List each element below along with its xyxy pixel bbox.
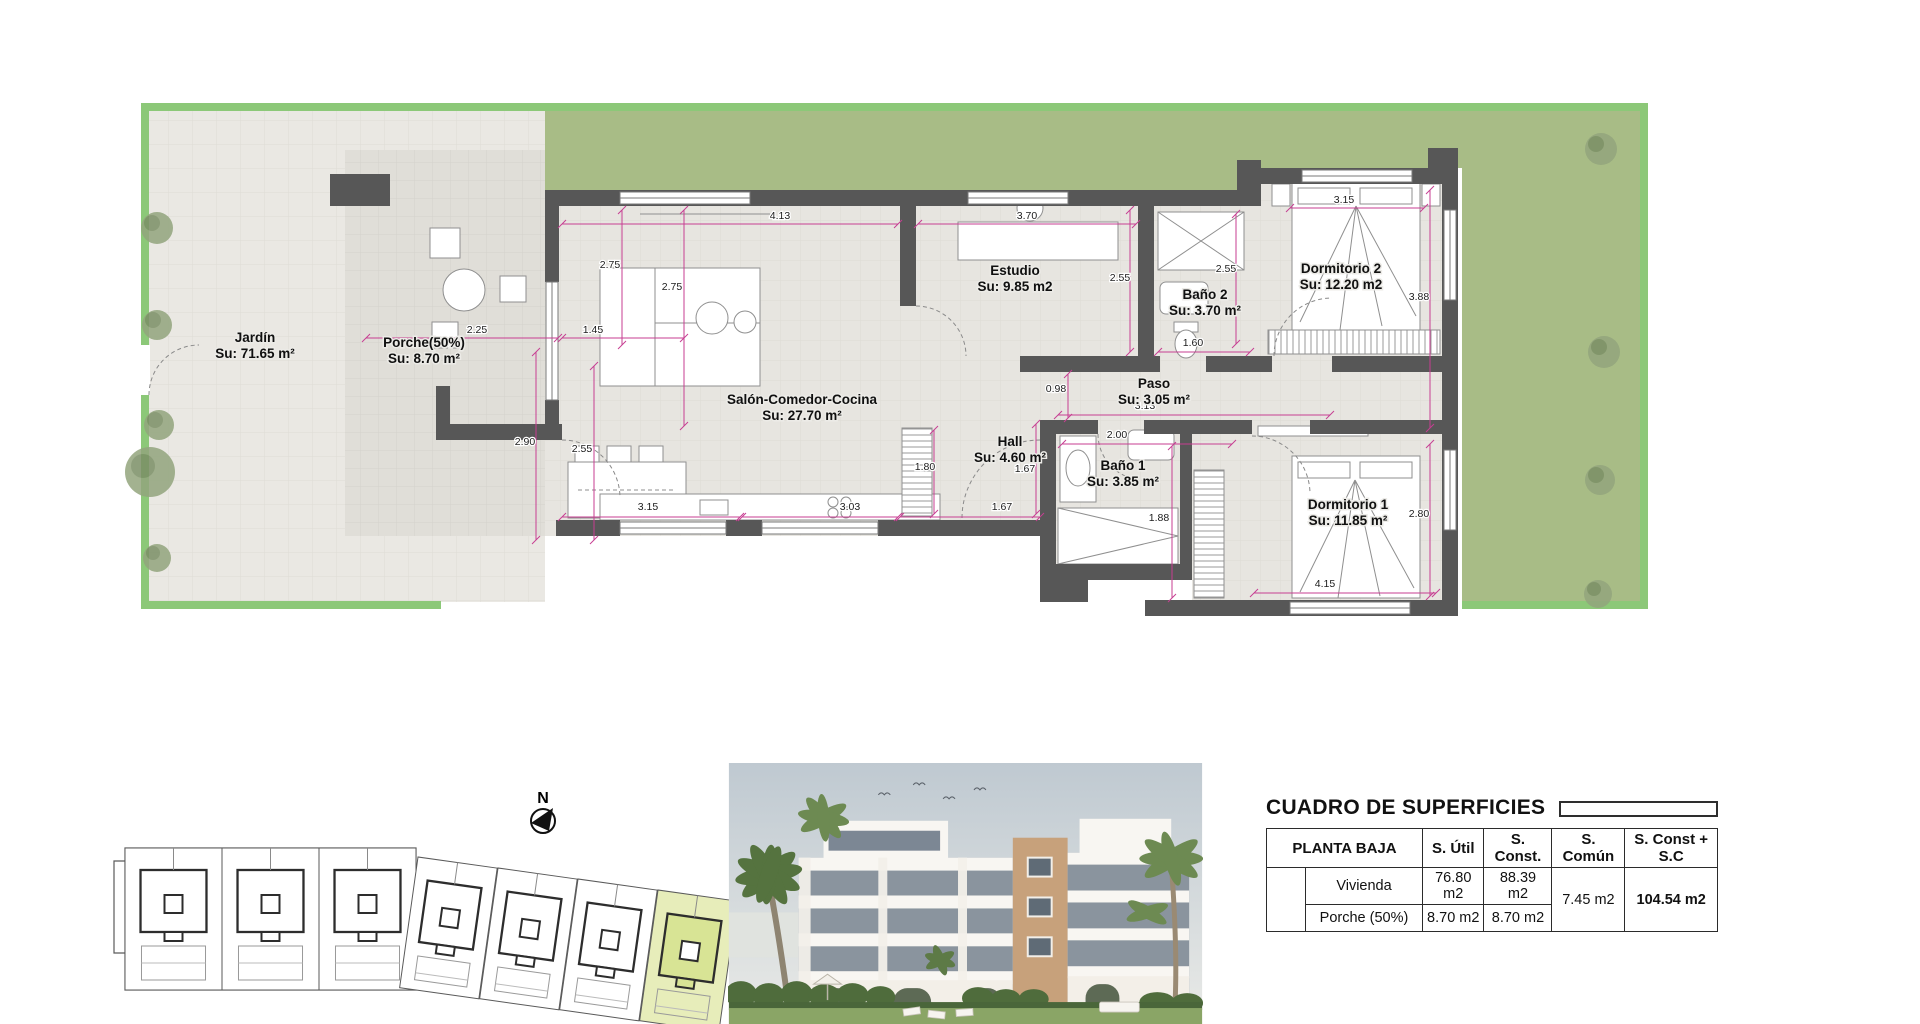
north-label: N — [537, 790, 549, 807]
porche-util-value: 8.70 m2 — [1423, 905, 1484, 932]
dimension-label: 3.03 — [840, 501, 861, 513]
site-unit — [125, 848, 222, 990]
room-label: Jardín — [235, 330, 276, 345]
surface-table: PLANTA BAJA S. Útil S. Const. S. Común S… — [1266, 828, 1718, 932]
dimension-label: 2.25 — [467, 324, 488, 336]
dimension-label: 2.55 — [572, 443, 593, 455]
dimension-label: 2.55 — [1216, 263, 1237, 275]
dimension-label: 1.88 — [1149, 512, 1170, 524]
surface-table-title: CUADRO DE SUPERFICIES — [1266, 796, 1545, 820]
room-label: Su: 3.85 m² — [1087, 474, 1160, 489]
dimension-label: 2.55 — [1110, 272, 1131, 284]
title-bar-decoration — [1559, 801, 1718, 817]
room-label: Su: 8.70 m² — [388, 351, 461, 366]
col-s-const-sc: S. Const + S.C — [1625, 829, 1718, 868]
room-label: Paso — [1138, 376, 1170, 391]
room-label: Su: 27.70 m² — [762, 408, 842, 423]
dimension-label: 4.13 — [770, 210, 791, 222]
dimension-label: 1.67 — [992, 501, 1013, 513]
dimension-label: 3.70 — [1017, 210, 1038, 222]
room-label: Estudio — [990, 263, 1040, 278]
room-label: Su: 71.65 m² — [215, 346, 295, 361]
garden-gate — [140, 345, 150, 395]
room-label: Baño 1 — [1100, 458, 1146, 473]
vivienda-label: Vivienda — [1306, 868, 1423, 905]
room-label: Dormitorio 2 — [1301, 261, 1381, 276]
dimension-label: 0.98 — [1046, 383, 1067, 395]
comun-value: 7.45 m2 — [1552, 868, 1625, 932]
table-row: Vivienda 76.80 m2 88.39 m2 7.45 m2 104.5… — [1267, 868, 1718, 905]
dimension-label: 3.15 — [638, 501, 659, 513]
dimension-label: 4.15 — [1315, 578, 1336, 590]
room-label: Su: 11.85 m² — [1309, 513, 1388, 528]
dimension-label: 2.75 — [662, 281, 683, 293]
porche-label: Porche (50%) — [1306, 905, 1423, 932]
site-unit — [222, 848, 319, 990]
dimension-label: 1.45 — [583, 324, 604, 336]
room-label: Dormitorio 1 — [1308, 497, 1389, 512]
col-s-util: S. Útil — [1423, 829, 1484, 868]
room-label: Su: 3.70 m² — [1169, 303, 1242, 318]
col-s-comun: S. Común — [1552, 829, 1625, 868]
vivienda-const-value: 88.39 m2 — [1484, 868, 1552, 905]
site-unit — [319, 848, 416, 990]
dimension-label: 2.75 — [600, 259, 621, 271]
col-s-const: S. Const. — [1484, 829, 1552, 868]
dimension-label: 3.15 — [1334, 194, 1355, 206]
total-value: 104.54 m2 — [1625, 868, 1718, 932]
building-render-photo — [728, 763, 1203, 1024]
table-header-row: PLANTA BAJA S. Útil S. Const. S. Común S… — [1267, 829, 1718, 868]
room-label: Hall — [998, 434, 1023, 449]
blank-cell — [1267, 868, 1306, 932]
distant-buildings — [729, 912, 799, 957]
vivienda-util-value: 76.80 m2 — [1423, 868, 1484, 905]
dimension-label: 2.00 — [1107, 429, 1128, 441]
room-label: Porche(50%) — [383, 335, 465, 350]
surface-table-panel: CUADRO DE SUPERFICIES PLANTA BAJA S. Úti… — [1266, 796, 1718, 932]
dimension-label: 2.80 — [1409, 508, 1430, 520]
north-arrow: N — [531, 790, 555, 833]
room-label: Salón-Comedor-Cocina — [727, 392, 878, 407]
room-label: Su: 4.60 m² — [974, 450, 1047, 465]
dimension-label: 3.88 — [1409, 291, 1430, 303]
room-label: Su: 12.20 m2 — [1300, 277, 1383, 292]
room-label: Baño 2 — [1182, 287, 1227, 302]
dimension-label: 1.60 — [1183, 337, 1204, 349]
site-plan — [114, 848, 737, 1024]
room-label: Su: 3.05 m² — [1118, 392, 1191, 407]
col-planta-baja: PLANTA BAJA — [1267, 829, 1423, 868]
porche-const-value: 8.70 m2 — [1484, 905, 1552, 932]
dimension-label: 1.80 — [915, 461, 936, 473]
dimension-label: 2.90 — [515, 436, 536, 448]
room-label: Su: 9.85 m2 — [977, 279, 1052, 294]
